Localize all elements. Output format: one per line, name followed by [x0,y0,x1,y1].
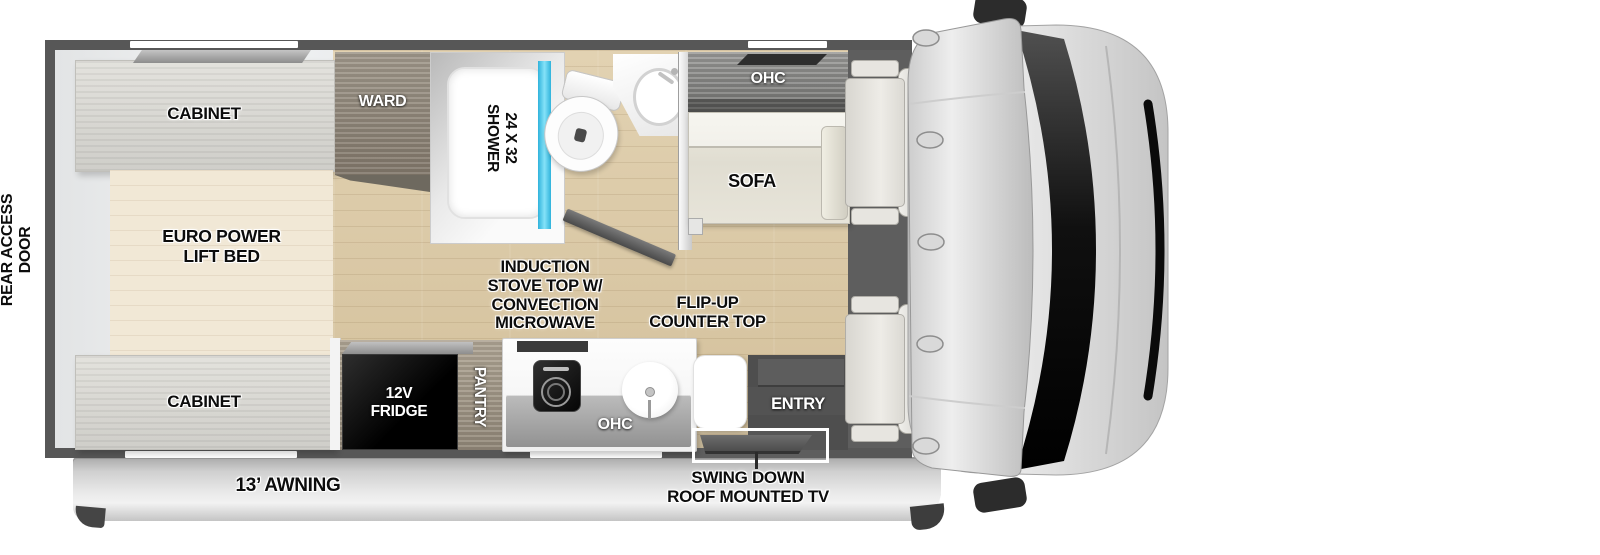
sofa [688,112,850,224]
sofa-armrest [821,126,848,220]
window-kitchen-bottom [530,451,662,458]
side-mirror-bottom [972,476,1028,514]
van-cab-front [896,0,1186,555]
window-front-top [748,41,827,48]
induction-stove [533,360,581,412]
ohc-living-label: OHC [688,70,848,88]
bedroom-window-sill [133,50,311,63]
kitchen-sink [622,362,678,418]
entry-step [758,359,844,387]
kitchen-window-sill [342,342,473,354]
cabinet-top-label: CABINET [75,104,333,123]
passenger-seat-armrest [851,296,899,313]
entry-label: ENTRY [748,395,848,414]
window-rear-bottom [125,451,297,458]
wardrobe [335,52,430,175]
window-rear-top [130,41,298,48]
wall-rear [45,40,55,458]
fridge-label: 12V FRIDGE [342,385,456,420]
counter-vent [517,341,588,352]
stove-burner-inner [547,383,565,401]
tv-leader-line [755,452,758,469]
roof-vent [737,54,827,65]
wardrobe-label: WARD [335,93,430,111]
driver-seat-armrest [851,60,899,77]
stove-control [543,367,569,371]
flip-up-counter [693,355,747,429]
rv-floorplan-diagram: REAR ACCESS DOOR 13’ AWNING SWING DOWN R… [0,0,1600,555]
pantry-label: PANTRY [468,347,488,447]
driver-seat-armrest [851,208,899,225]
rear-access-door-label: REAR ACCESS DOOR [0,165,45,335]
sofa-wall-stub [688,218,703,235]
kitchen-faucet-knob [645,387,655,397]
cabinet-bottom-label: CABINET [75,392,333,411]
passenger-seat-armrest [851,425,899,442]
flip-up-counter-note: FLIP-UP COUNTER TOP [635,294,780,332]
tv-note-label: SWING DOWN ROOF MOUNTED TV [618,468,878,507]
coach-body: CABINET EURO POWER LIFT BED CABINET WARD… [45,40,912,458]
lift-bed-label: EURO POWER LIFT BED [110,227,333,267]
tv-outline-box [692,428,829,463]
induction-stove-note: INDUCTION STOVE TOP W/ CONVECTION MICROW… [465,258,625,333]
sofa-label: SOFA [688,171,816,192]
sink-faucet-knob [671,68,678,75]
ohc-kitchen-label: OHC [545,416,685,434]
shower-label: 24 X 32 SHOWER [475,78,519,198]
awning-label: 13’ AWNING [208,475,368,497]
